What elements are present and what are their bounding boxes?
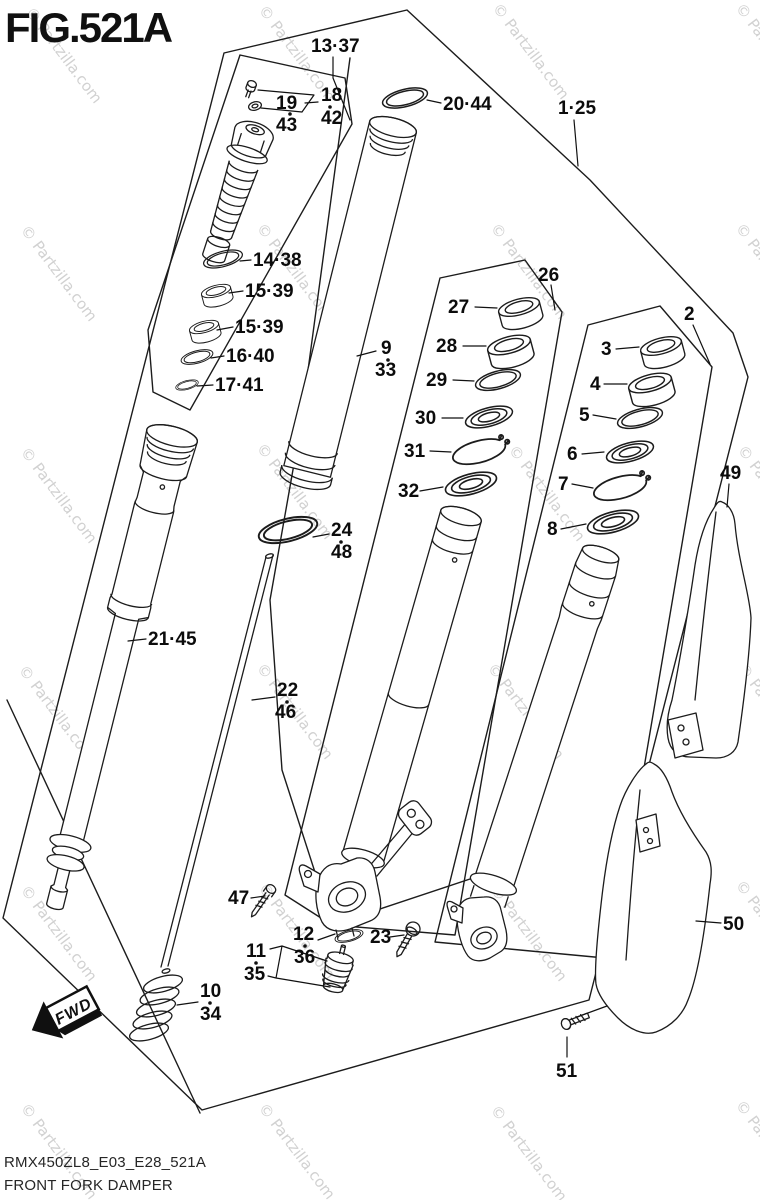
callout-47[interactable]: 47 bbox=[228, 888, 249, 909]
callout-16-40[interactable]: 16·40 bbox=[226, 346, 275, 367]
callout-4[interactable]: 4 bbox=[590, 374, 601, 395]
callout-49[interactable]: 49 bbox=[720, 463, 741, 484]
part-protector-49 bbox=[667, 501, 751, 758]
callout-24[interactable]: 24 bbox=[331, 520, 353, 541]
part-ring-28 bbox=[486, 331, 536, 372]
part-ring-4 bbox=[627, 369, 677, 410]
callout-22[interactable]: 22 bbox=[277, 680, 298, 701]
callout-20-44[interactable]: 20·44 bbox=[443, 94, 492, 115]
watermark: © Partzilla.com bbox=[255, 1100, 339, 1200]
callout-15-39b[interactable]: 15·39 bbox=[235, 317, 284, 338]
part-spring-10 bbox=[128, 972, 185, 1045]
callout-28[interactable]: 28 bbox=[436, 336, 457, 357]
watermark: © Partzilla.com bbox=[732, 0, 760, 103]
diagram-canvas: © Partzilla.com © Partzilla.com © Partzi… bbox=[0, 0, 760, 1200]
callout-50[interactable]: 50 bbox=[723, 914, 744, 935]
callout-15-39a[interactable]: 15·39 bbox=[245, 281, 294, 302]
part-ring-15a bbox=[200, 282, 234, 310]
callout-23[interactable]: 23 bbox=[370, 927, 391, 948]
callout-11[interactable]: 11 bbox=[246, 941, 267, 962]
part-washer-19 bbox=[248, 100, 263, 111]
callout-32[interactable]: 32 bbox=[398, 481, 419, 502]
callout-29[interactable]: 29 bbox=[426, 370, 447, 391]
callout-6[interactable]: 6 bbox=[567, 444, 578, 465]
callout-30[interactable]: 30 bbox=[415, 408, 436, 429]
callout-8[interactable]: 8 bbox=[547, 519, 558, 540]
callout-21-45[interactable]: 21·45 bbox=[148, 629, 197, 650]
callout-27[interactable]: 27 bbox=[448, 297, 469, 318]
callout-12[interactable]: 12 bbox=[293, 924, 314, 945]
callout-19[interactable]: 19 bbox=[276, 93, 297, 114]
callout-31[interactable]: 31 bbox=[404, 441, 426, 462]
callout-10[interactable]: 10 bbox=[200, 981, 221, 1002]
callout-2[interactable]: 2 bbox=[684, 304, 695, 325]
callout-33[interactable]: 33 bbox=[375, 360, 396, 381]
callout-3[interactable]: 3 bbox=[601, 339, 612, 360]
callout-14-38[interactable]: 14·38 bbox=[253, 250, 302, 271]
diagram-page: © Partzilla.com © Partzilla.com © Partzi… bbox=[0, 0, 760, 1200]
part-tube-9 bbox=[278, 112, 421, 494]
fwd-arrow: FWD bbox=[22, 980, 103, 1049]
part-ring-29 bbox=[473, 366, 522, 395]
callout-26[interactable]: 26 bbox=[538, 265, 559, 286]
part-ring-17 bbox=[175, 378, 200, 392]
watermark: © Partzilla.com bbox=[17, 222, 101, 325]
part-screw-19 bbox=[243, 79, 257, 98]
part-rod-22 bbox=[161, 553, 274, 974]
callout-46[interactable]: 46 bbox=[275, 702, 296, 723]
callout-13-37[interactable]: 13·37 bbox=[311, 36, 360, 57]
part-ring-8 bbox=[585, 506, 641, 539]
callout-51[interactable]: 51 bbox=[556, 1061, 578, 1082]
watermark: © Partzilla.com bbox=[732, 220, 760, 323]
part-ring-31 bbox=[450, 433, 512, 469]
part-ring-32 bbox=[443, 468, 499, 501]
callout-35[interactable]: 35 bbox=[244, 964, 266, 985]
part-oring-20 bbox=[381, 84, 430, 112]
callout-42[interactable]: 42 bbox=[321, 108, 342, 129]
part-ring-16 bbox=[180, 347, 215, 368]
callout-43[interactable]: 43 bbox=[276, 115, 297, 136]
callout-17-41[interactable]: 17·41 bbox=[215, 375, 264, 396]
callout-7[interactable]: 7 bbox=[558, 474, 569, 495]
watermark: © Partzilla.com bbox=[489, 0, 573, 103]
part-ring-27 bbox=[497, 294, 545, 333]
callout-5[interactable]: 5 bbox=[579, 405, 590, 426]
part-ring-3 bbox=[639, 333, 687, 372]
callout-9[interactable]: 9 bbox=[381, 338, 392, 359]
part-ring-6 bbox=[604, 437, 655, 467]
callout-36[interactable]: 36 bbox=[294, 947, 315, 968]
part-ring-5 bbox=[615, 404, 664, 433]
part-ring-7 bbox=[591, 469, 653, 505]
callout-48[interactable]: 48 bbox=[331, 542, 352, 563]
footer-figure-name: FRONT FORK DAMPER bbox=[4, 1177, 173, 1194]
callout-18[interactable]: 18 bbox=[321, 85, 342, 106]
part-ring-15b bbox=[188, 318, 222, 346]
watermark: © Partzilla.com bbox=[734, 442, 760, 545]
part-protector-50 bbox=[595, 762, 711, 1033]
footer-part-code: RMX450ZL8_E03_E28_521A bbox=[4, 1154, 206, 1171]
callout-34[interactable]: 34 bbox=[200, 1004, 222, 1025]
callout-1-25[interactable]: 1·25 bbox=[558, 98, 596, 119]
part-ring-30 bbox=[463, 402, 514, 432]
watermark: © Partzilla.com bbox=[17, 444, 101, 547]
part-screw-23 bbox=[391, 919, 423, 960]
figure-title: FIG.521A bbox=[5, 4, 171, 52]
watermark: © Partzilla.com bbox=[732, 1097, 760, 1200]
watermark: © Partzilla.com bbox=[487, 1102, 571, 1200]
part-oring-24 bbox=[256, 512, 320, 548]
